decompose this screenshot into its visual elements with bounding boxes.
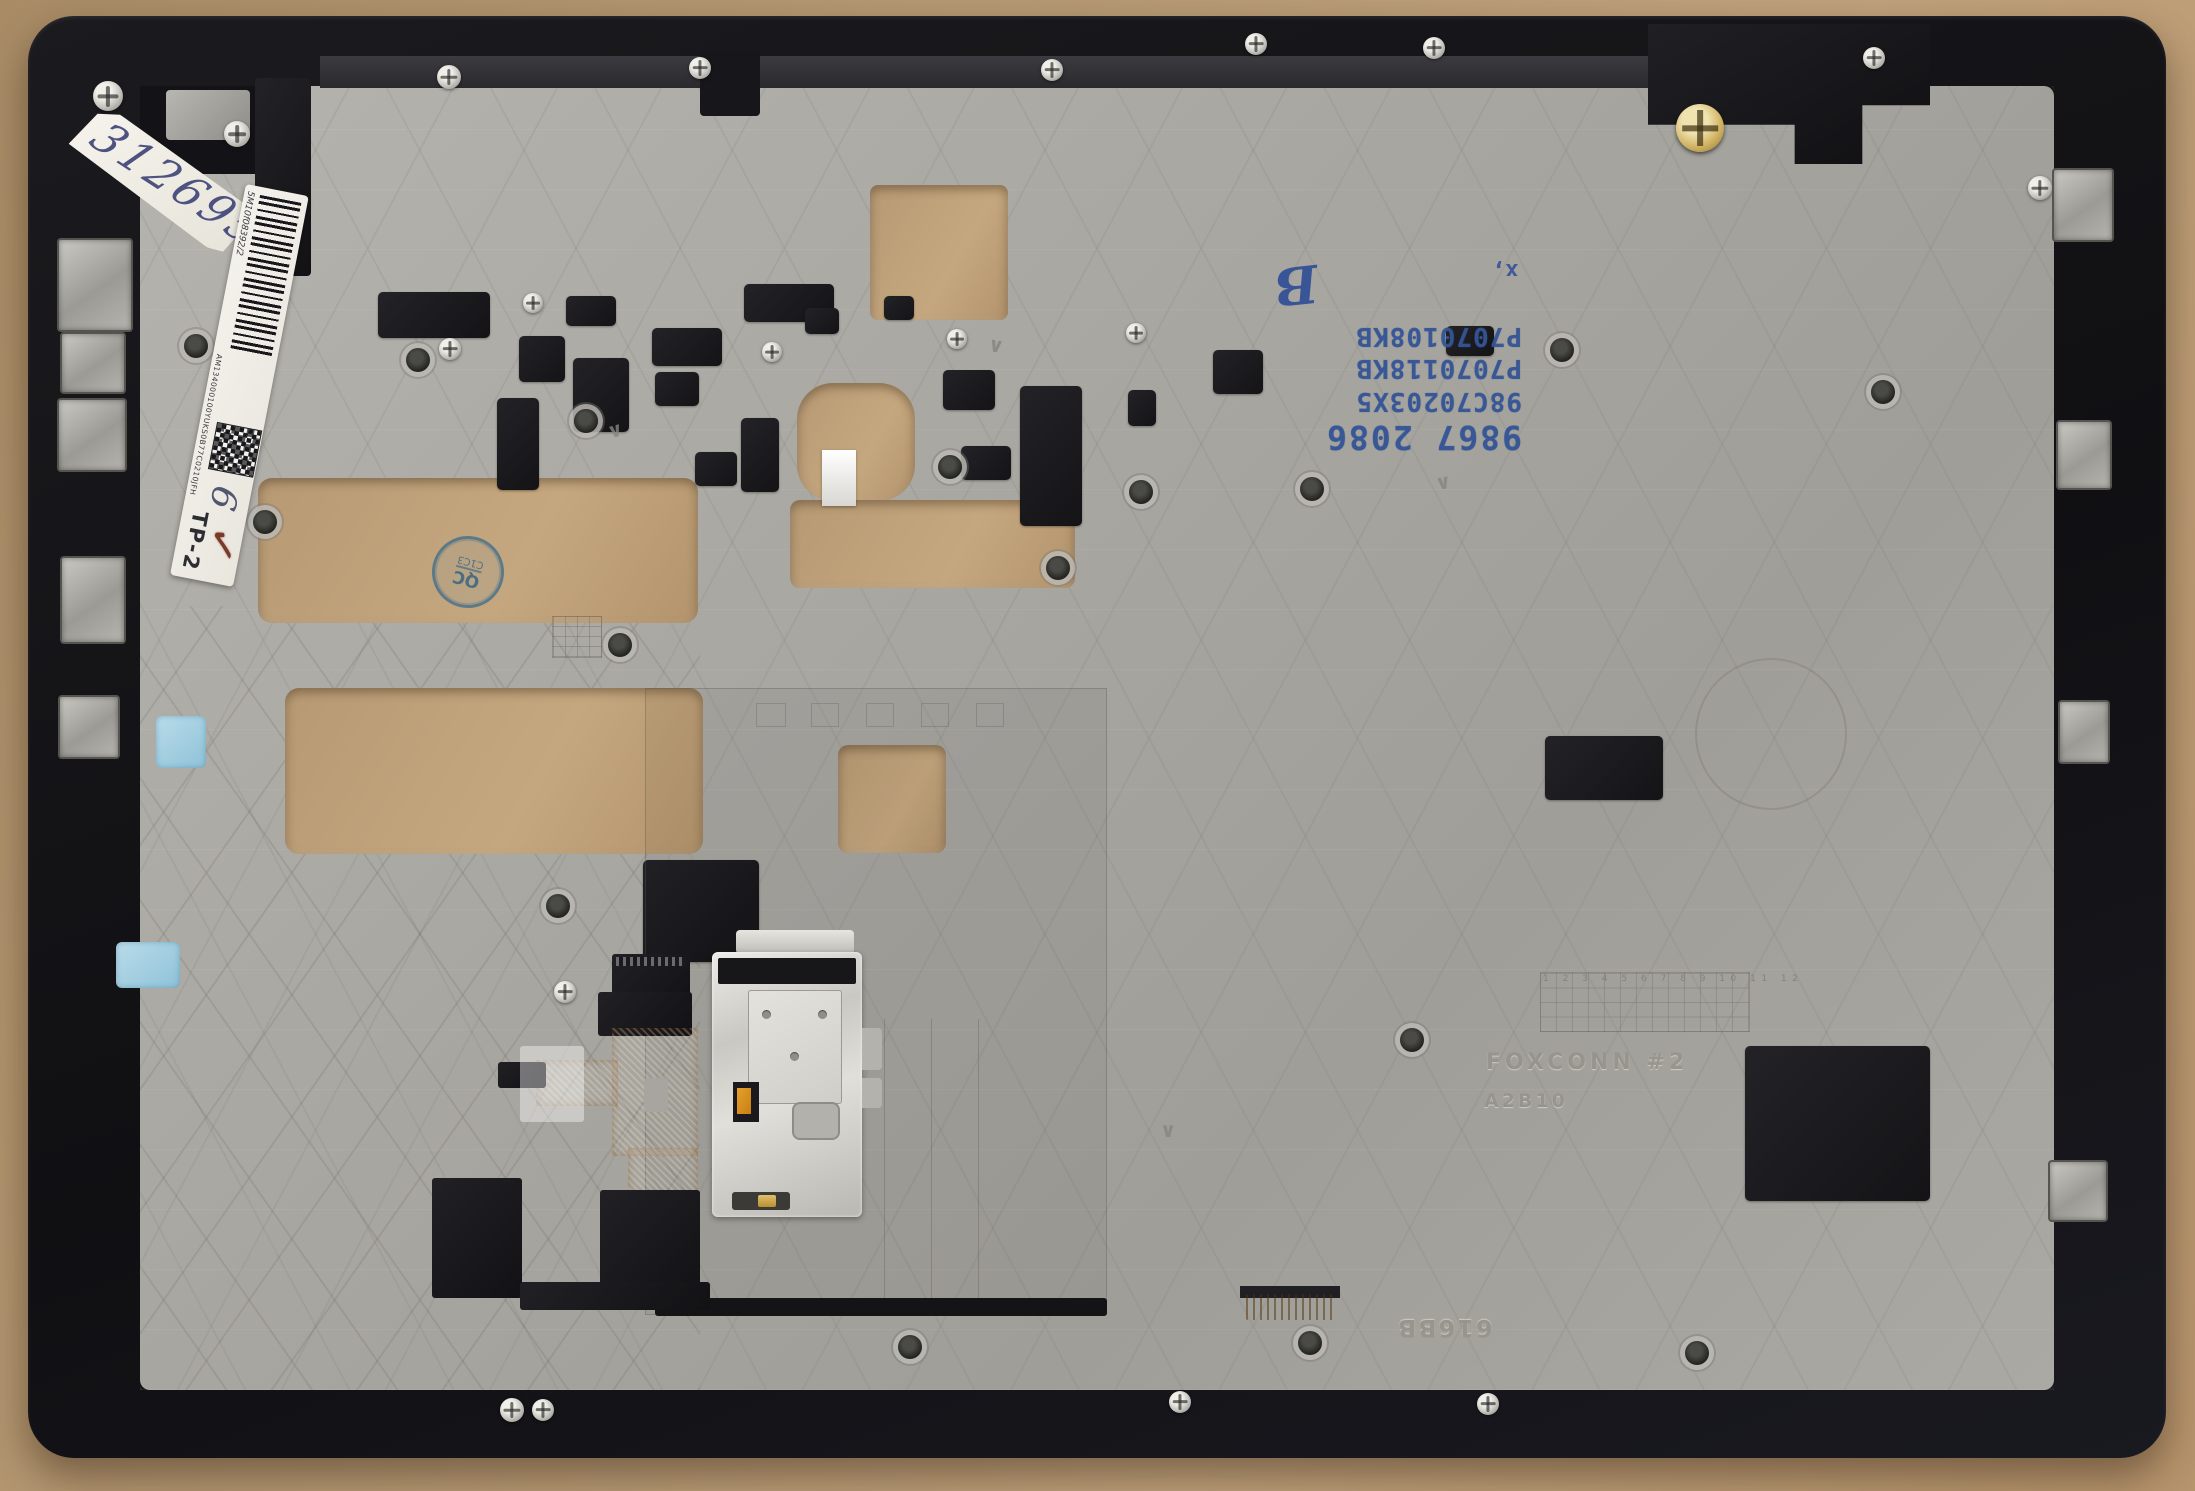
mylar-sticker (961, 446, 1011, 480)
engraved-detail (976, 703, 1004, 727)
screw-hole (1300, 477, 1324, 501)
black-ribbon-bottom (520, 1282, 710, 1310)
stamp-line-1: P7070108KB (1282, 319, 1522, 352)
edge-port-block (2048, 1160, 2108, 1222)
engraved-chevron: ∨ (1160, 1118, 1176, 1142)
edge-port-block (2058, 700, 2110, 764)
engraved-line (931, 1019, 932, 1309)
phillips-screw (500, 1398, 524, 1422)
phillips-screw (1477, 1393, 1499, 1415)
panel-cutout-opening (797, 383, 915, 501)
phillips-screw (439, 338, 461, 360)
stamp-line-4: 9867 2086 (1282, 417, 1522, 458)
bracket-side-tab (862, 1028, 882, 1070)
screw-hole (253, 510, 277, 534)
datamatrix-code-overlay (209, 423, 261, 477)
screw-hole (1129, 480, 1153, 504)
edge-port-block (57, 398, 127, 472)
photo-laptop-palmrest-scene: ∨∨∨∨∨ 312695 5M10f08392/2 AM134000100YUK… (0, 0, 2195, 1491)
orange-flex-cable (612, 1028, 698, 1156)
screw-hole (608, 633, 632, 657)
edge-port-block (60, 332, 126, 394)
bracket-rounded-window (792, 1102, 840, 1140)
top-inner-lip (320, 56, 1650, 88)
phillips-screw (2028, 176, 2052, 200)
blue-foam-pad (156, 716, 206, 768)
orange-flex-lower (628, 1148, 698, 1196)
engraved-mold-text: 616BB (1396, 1314, 1493, 1342)
engraved-vendor-text: FOXCONN #2 (1486, 1050, 1688, 1075)
phillips-screw (1126, 323, 1146, 343)
screw-hole (184, 334, 208, 358)
touchpad-metal-bracket (712, 952, 862, 1217)
screw-hole (1550, 338, 1574, 362)
engraved-circle (1695, 658, 1847, 810)
engraved-line (884, 1019, 885, 1309)
bracket-bottom-slot (732, 1192, 790, 1210)
mylar-sticker (519, 336, 565, 382)
mylar-sticker (1213, 350, 1263, 394)
screw-hole (1871, 380, 1895, 404)
phillips-screw (532, 1399, 554, 1421)
panel-cutout-opening (285, 688, 703, 854)
mylar-sticker (805, 308, 839, 334)
blue-ink-stamp-block: 9867 2086 98C70203X5 P7070118KB P7070108… (1282, 268, 1522, 458)
phillips-screw (554, 981, 576, 1003)
handwritten-digit: 6 (200, 481, 246, 514)
mylar-sticker (378, 292, 490, 338)
screw-hole (1685, 1341, 1709, 1365)
mylar-sticker (1128, 390, 1156, 426)
screw-hole (1298, 1331, 1322, 1355)
blue-foam-pad (116, 942, 180, 988)
engraved-waffle (552, 616, 602, 658)
screw-hole (1400, 1028, 1424, 1052)
screw-hole (1046, 556, 1070, 580)
mylar-sticker (741, 418, 779, 492)
handwritten-mark: x, (1492, 258, 1519, 283)
screw-hole (546, 894, 570, 918)
mylar-sticker (497, 398, 539, 490)
engraved-rev-text: A2B10 (1484, 1090, 1568, 1112)
screw-hole (406, 348, 430, 372)
clear-tape (520, 1046, 584, 1122)
phillips-screw (689, 57, 711, 79)
phillips-screw (93, 81, 123, 111)
bottom-trim-bar (655, 1298, 1107, 1316)
bracket-side-tab (862, 1078, 882, 1108)
mylar-sticker (695, 452, 737, 486)
edge-port-block (58, 695, 120, 759)
engraved-line (978, 1019, 979, 1309)
edge-port-block (60, 556, 126, 644)
mold-date-grid: 1 2 3 4 5 6 7 8 9 10 11 12 (1540, 972, 1750, 1032)
mylar-sticker (655, 372, 699, 406)
phillips-screw (762, 342, 782, 362)
bracket-cable-window (733, 1082, 759, 1122)
bracket-top-clip (736, 930, 854, 954)
phillips-screw (224, 121, 250, 147)
engraved-detail (921, 703, 949, 727)
stamp-line-3: 98C70203X5 (1282, 384, 1522, 417)
mylar-sticker (652, 328, 722, 366)
mold-date-grid-numbers: 1 2 3 4 5 6 7 8 9 10 11 12 (1543, 974, 1803, 984)
phillips-screw (437, 65, 461, 89)
mylar-sticker (566, 296, 616, 326)
engraved-detail (811, 703, 839, 727)
mylar-sticker (1020, 386, 1082, 526)
bracket-inner-plate (748, 990, 842, 1104)
screw-hole (938, 455, 962, 479)
phillips-screw (947, 329, 967, 349)
screw-hole (898, 1335, 922, 1359)
edge-port-block (2056, 420, 2112, 490)
phillips-screw (1863, 47, 1885, 69)
edge-port-block (57, 238, 133, 332)
shiny-foil-strip (822, 450, 856, 506)
phillips-screw (1041, 59, 1063, 81)
bracket-black-tape (718, 958, 856, 984)
mylar-sticker (1545, 736, 1663, 800)
phillips-screw (1423, 37, 1445, 59)
gold-edge-connector (1246, 1294, 1334, 1320)
phillips-screw (1245, 33, 1267, 55)
engraved-detail (866, 703, 894, 727)
handwritten-letter: B (1271, 252, 1321, 317)
phillips-screw (523, 293, 543, 313)
black-ribbon-left (432, 1178, 522, 1298)
screw-hole (574, 409, 598, 433)
top-center-tab (700, 50, 760, 116)
phillips-screw (1169, 1391, 1191, 1413)
mylar-sticker (943, 370, 995, 410)
edge-port-block (2052, 168, 2114, 242)
hinge-gold-screw (1676, 104, 1724, 152)
mylar-sticker (1745, 1046, 1930, 1201)
stamp-line-2: P7070118KB (1282, 352, 1522, 385)
engraved-detail (756, 703, 786, 727)
mylar-sticker (884, 296, 914, 320)
